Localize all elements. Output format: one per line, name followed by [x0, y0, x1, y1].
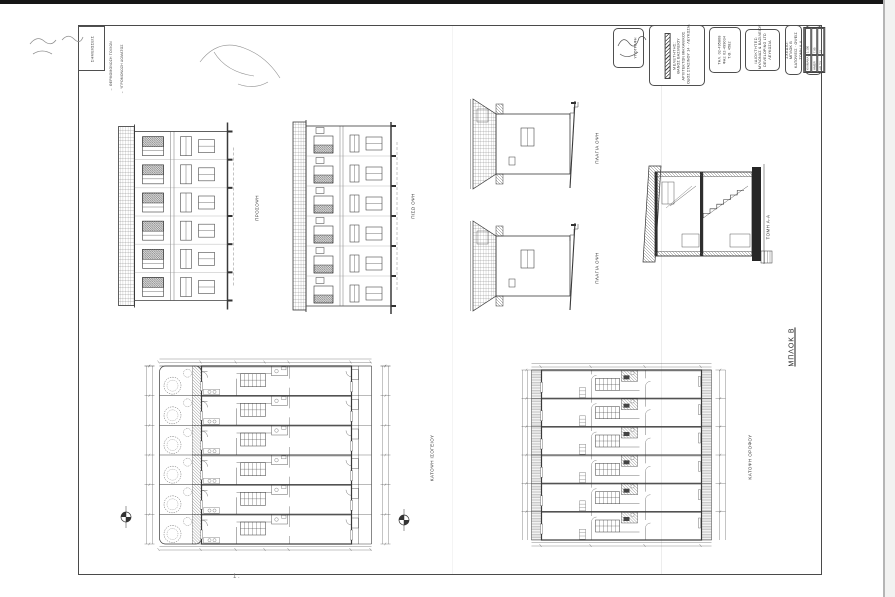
ground-hatch: [752, 167, 761, 261]
side-elevation-bottom-label: ΠΛΑΓΙΑ ΟΨΗ: [595, 252, 600, 284]
section-drawing: [643, 164, 772, 264]
roof-section: [643, 166, 661, 262]
side-elevation-top-label: ΠΛΑΓΙΑ ΟΨΗ: [595, 132, 600, 164]
roof: [119, 127, 135, 306]
level-marker: [121, 506, 131, 528]
rear-elevation-drawing: [293, 120, 397, 314]
block-title-label: ΜΠΛΟΚ Β: [789, 327, 796, 366]
upper-floor-plan-label: ΚΑΤΟΨΗ ΟΡΟΦΟΥ: [748, 434, 753, 479]
side-elevation-bottom-drawing: [471, 221, 579, 311]
ground-floor-plan-label: ΚΑΤΟΨΗ ΙΣΟΓΕΙΟΥ: [430, 435, 435, 482]
upper-floor-plan-drawing: [522, 364, 726, 548]
drawings-canvas: [0, 0, 895, 597]
side-elevation-top-drawing: [471, 99, 579, 189]
scanned-drawing-sheet: ΣΗΜΕΙΩΣΕΙΣ ← ΘΕΡΜΟΜΟΝΩΣΗ ΤΟΙΧΩΝ ← ΥΓΡΟΜΟ…: [0, 0, 895, 597]
rear-elevation-label: ΠΙΣΩ ΟΨΗ: [411, 193, 416, 219]
ground-floor-plan-drawing: [145, 359, 391, 551]
front-elevation-label: ΠΡΟΣΟΨΗ: [255, 195, 260, 221]
front-elevation-drawing: [119, 123, 234, 310]
page-mark: 1 .: [233, 574, 240, 580]
section-label: ΤΟΜΗ Α-Α: [766, 215, 771, 240]
pencil-scribbles: [30, 36, 280, 86]
signature-scribble: [618, 36, 646, 56]
level-marker: [399, 509, 409, 531]
floor-slab: [700, 172, 703, 256]
roof: [293, 122, 306, 310]
